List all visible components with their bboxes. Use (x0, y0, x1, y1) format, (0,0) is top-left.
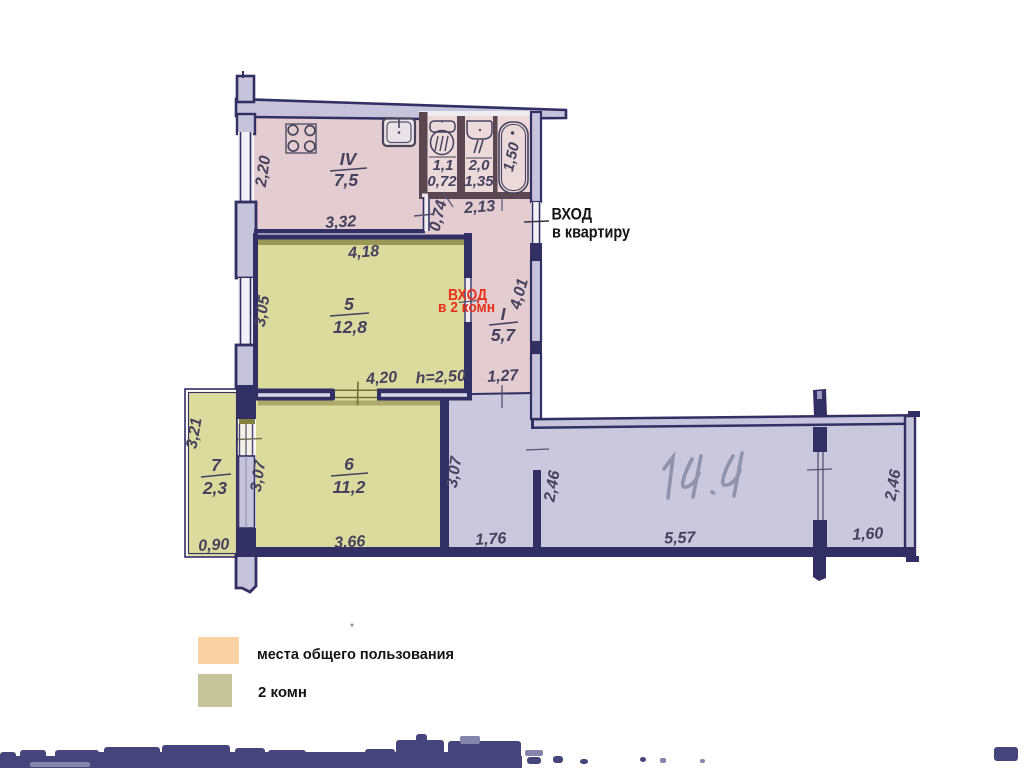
svg-text:11,2: 11,2 (333, 477, 366, 497)
svg-text:1,27: 1,27 (487, 367, 520, 386)
svg-text:2,13: 2,13 (463, 198, 496, 217)
svg-text:4,18: 4,18 (347, 243, 380, 262)
svg-text:1,76: 1,76 (475, 530, 507, 549)
svg-text:0,72: 0,72 (427, 173, 457, 190)
svg-text:2,3: 2,3 (202, 478, 228, 498)
svg-text:5,7: 5,7 (491, 325, 517, 345)
svg-text:7,5: 7,5 (334, 170, 359, 190)
svg-text:2,0: 2,0 (468, 157, 491, 174)
svg-text:1,60: 1,60 (852, 525, 884, 544)
svg-text:1,35: 1,35 (464, 173, 494, 190)
svg-text:5,57: 5,57 (664, 529, 697, 547)
svg-text:12,8: 12,8 (333, 317, 367, 337)
svg-text:7: 7 (211, 455, 222, 475)
svg-text:6: 6 (344, 454, 354, 474)
svg-text:5: 5 (344, 294, 354, 314)
svg-text:h=2,50: h=2,50 (415, 368, 466, 388)
svg-text:1,1: 1,1 (433, 157, 454, 174)
svg-text:4,20: 4,20 (365, 369, 398, 388)
svg-text:ВХОД: ВХОД (552, 205, 593, 224)
svg-text:места общего пользования: места общего пользования (257, 646, 454, 663)
svg-text:в 2 комн: в 2 комн (438, 299, 495, 316)
svg-text:2 комн: 2 комн (258, 684, 307, 701)
svg-text:IV: IV (340, 149, 358, 169)
svg-text:в квартиру: в квартиру (552, 223, 630, 242)
svg-text:0,90: 0,90 (198, 536, 230, 555)
